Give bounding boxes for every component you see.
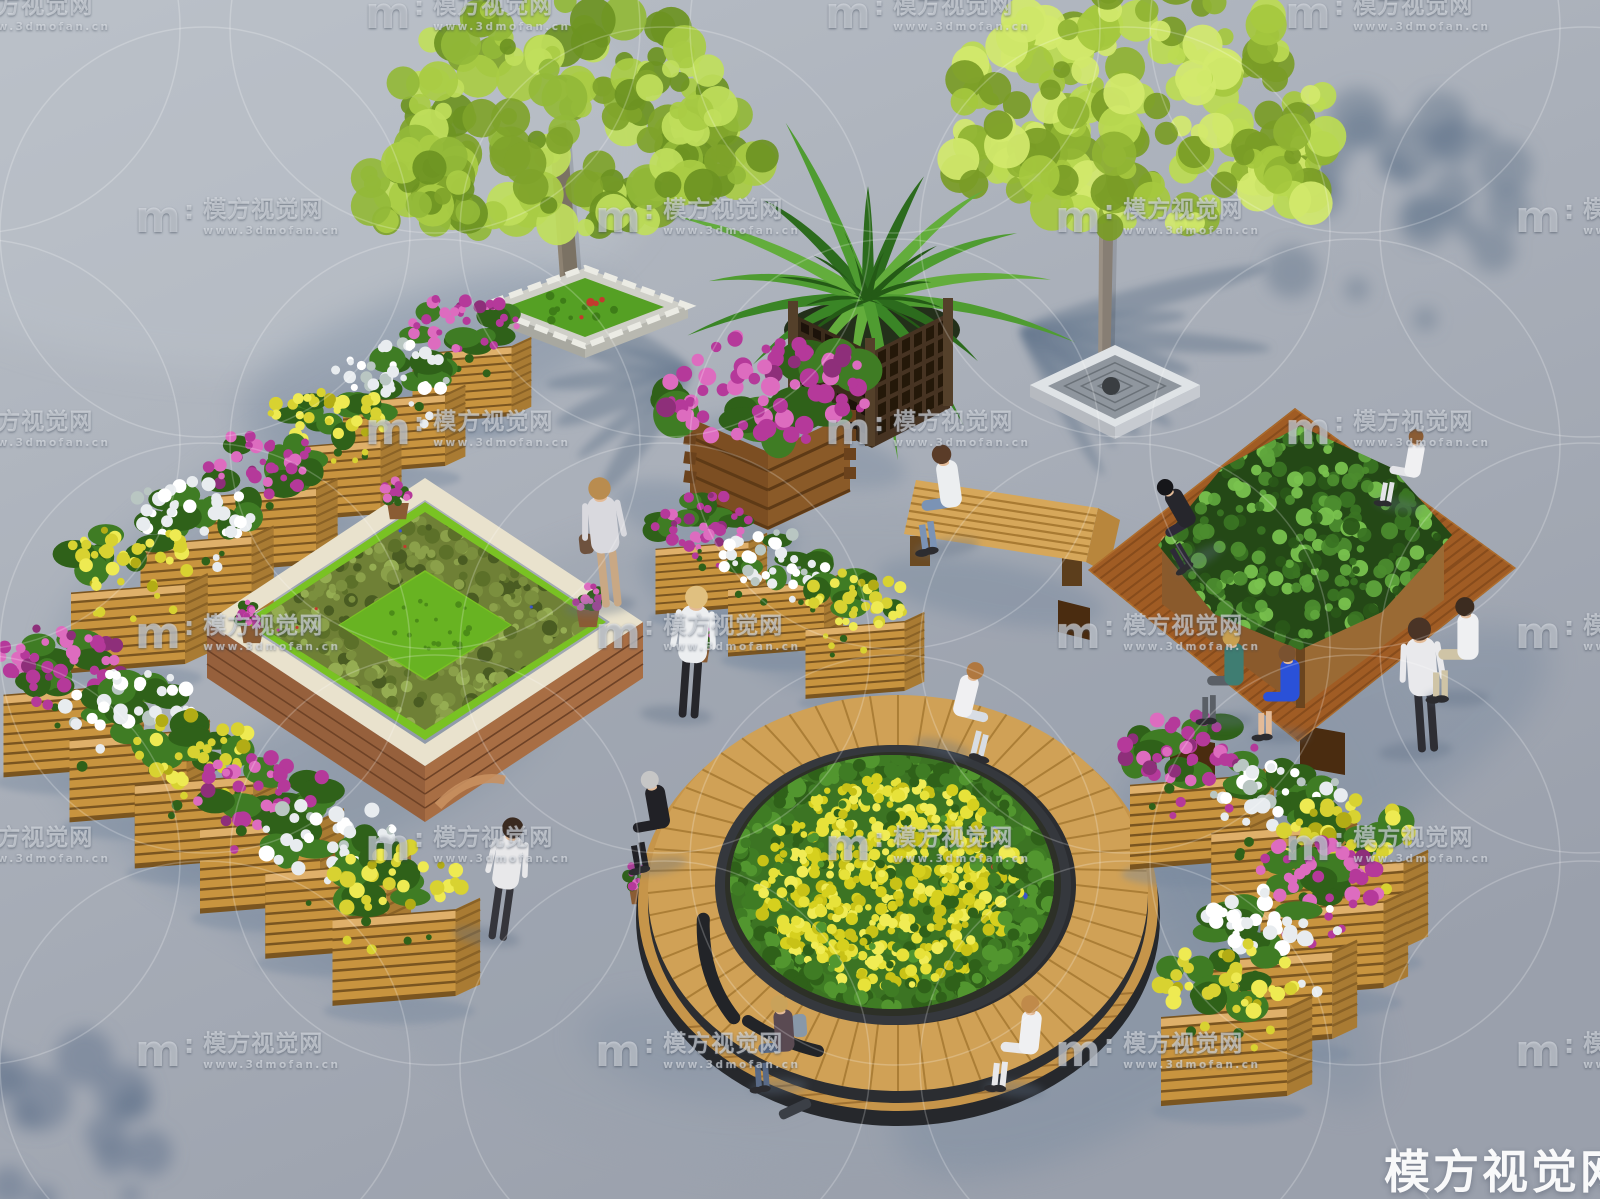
watermark-corner-brand: 模方视觉网 — [1384, 1136, 1600, 1199]
plaza-3d-render: m:模方视觉网www.3dmofan.cnm:模方视觉网www.3dmofan.… — [0, 0, 1600, 1199]
plaza-scene-canvas — [0, 0, 1600, 1199]
circular-planter-bench — [636, 695, 1160, 1126]
